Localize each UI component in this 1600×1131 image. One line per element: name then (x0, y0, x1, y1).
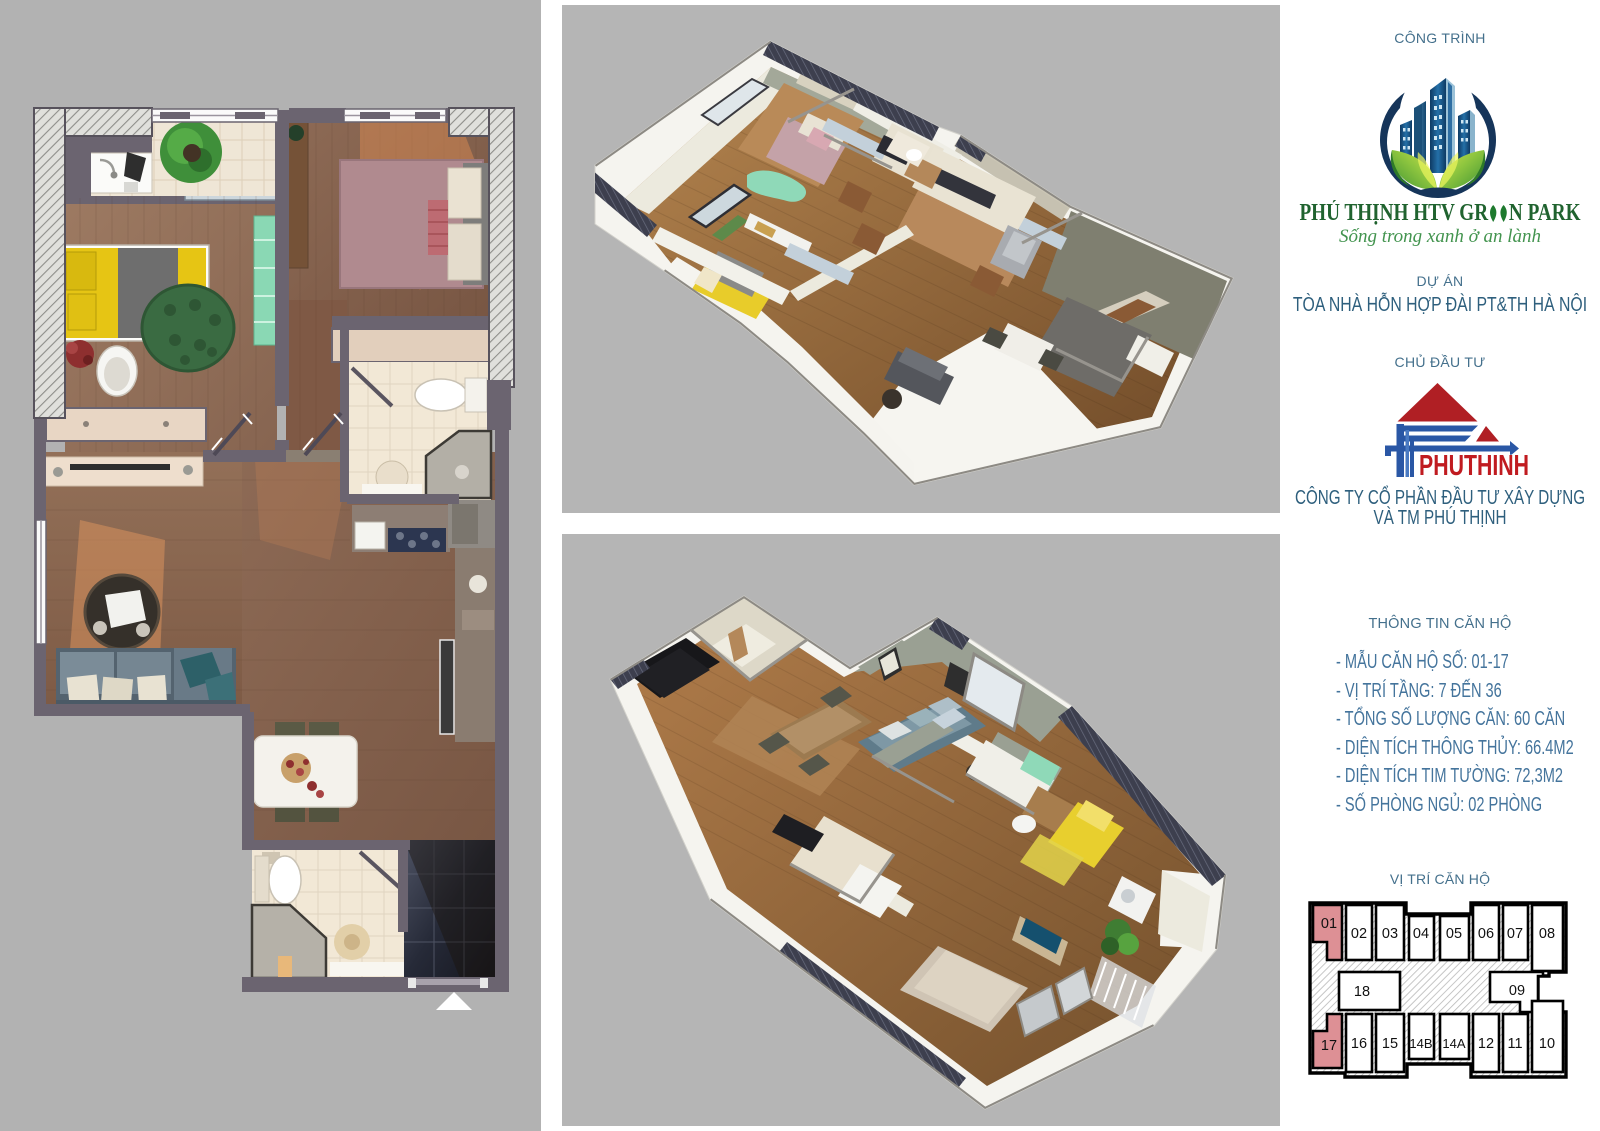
svg-text:PHUTHINH: PHUTHINH (1419, 450, 1529, 482)
svg-text:03: 03 (1382, 926, 1398, 942)
svg-text:10: 10 (1539, 1036, 1555, 1052)
svg-text:04: 04 (1413, 926, 1429, 942)
svg-text:14B: 14B (1409, 1036, 1432, 1051)
svg-text:08: 08 (1539, 926, 1555, 942)
svg-text:11: 11 (1507, 1036, 1522, 1052)
svg-text:01: 01 (1321, 916, 1337, 932)
svg-text:07: 07 (1507, 926, 1523, 942)
svg-text:14A: 14A (1442, 1036, 1465, 1051)
svg-text:05: 05 (1446, 926, 1462, 942)
svg-text:06: 06 (1478, 926, 1494, 942)
svg-text:18: 18 (1354, 984, 1370, 1000)
svg-text:12: 12 (1478, 1036, 1494, 1052)
svg-text:02: 02 (1351, 926, 1367, 942)
svg-text:15: 15 (1382, 1036, 1398, 1052)
svg-text:16: 16 (1351, 1036, 1367, 1052)
svg-text:09: 09 (1509, 983, 1525, 999)
svg-text:17: 17 (1321, 1038, 1337, 1054)
